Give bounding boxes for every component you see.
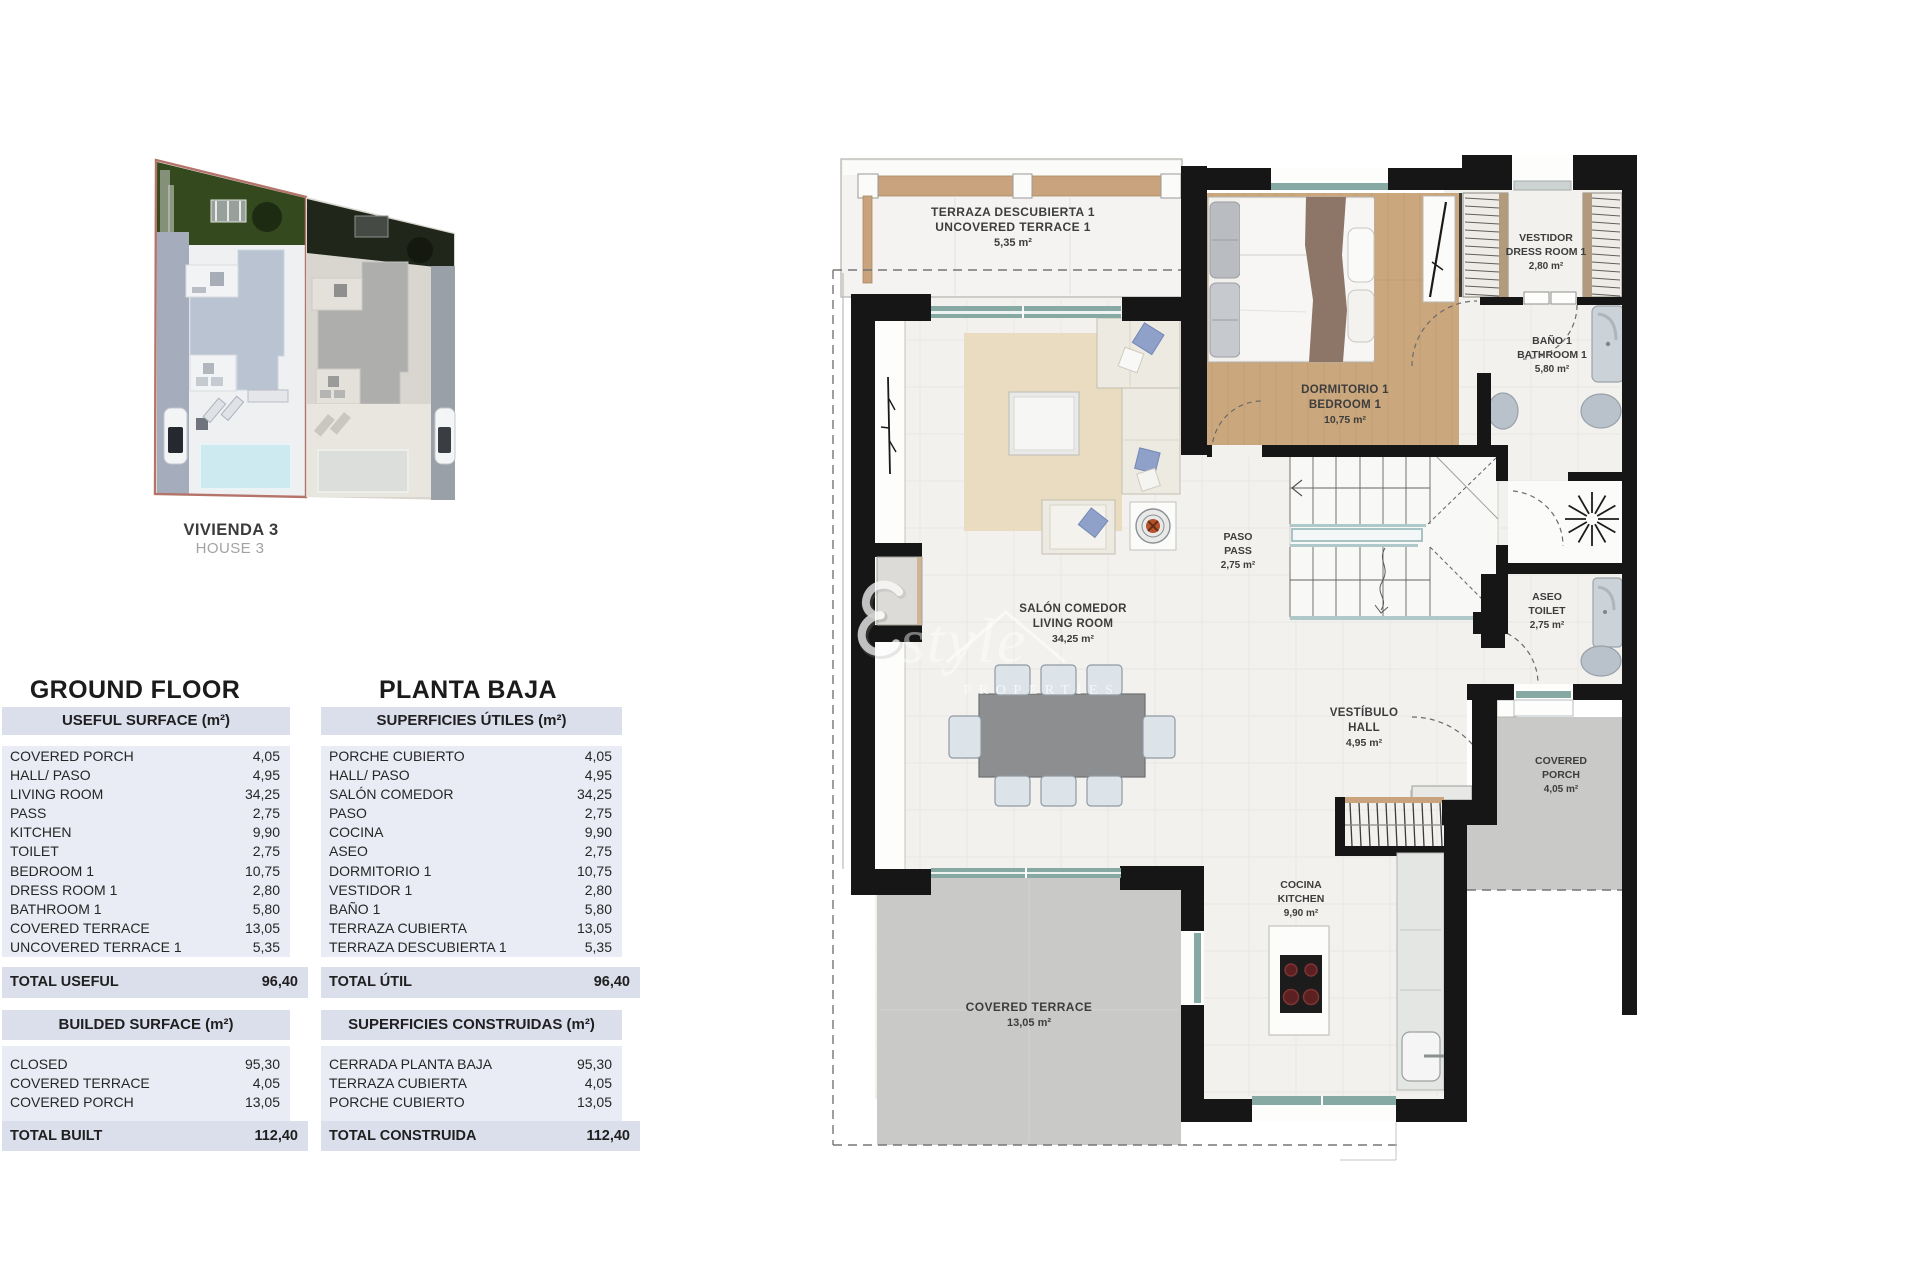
svg-text:2,75 m²: 2,75 m²	[1221, 560, 1256, 571]
svg-text:VIVIENDA 3: VIVIENDA 3	[183, 521, 278, 539]
svg-text:HOUSE 3: HOUSE 3	[196, 540, 265, 557]
svg-text:PASS: PASS	[1224, 545, 1252, 557]
svg-text:2,75 m²: 2,75 m²	[1530, 620, 1565, 631]
svg-text:VESTÍBULO: VESTÍBULO	[1330, 706, 1399, 719]
svg-text:5,80 m²: 5,80 m²	[1535, 364, 1570, 375]
svg-text:COVERED: COVERED	[1535, 755, 1587, 767]
svg-text:COCINA: COCINA	[1280, 879, 1322, 891]
svg-text:SALÓN COMEDOR: SALÓN COMEDOR	[1019, 602, 1127, 615]
svg-text:PORCH: PORCH	[1542, 769, 1580, 781]
svg-text:PASO: PASO	[1224, 531, 1253, 543]
svg-text:BEDROOM 1: BEDROOM 1	[1309, 399, 1382, 411]
svg-text:10,75 m²: 10,75 m²	[1324, 414, 1367, 426]
svg-text:4,05 m²: 4,05 m²	[1544, 784, 1579, 795]
svg-text:TERRAZA DESCUBIERTA 1: TERRAZA DESCUBIERTA 1	[931, 205, 1095, 219]
svg-text:COVERED TERRACE: COVERED TERRACE	[966, 1000, 1093, 1014]
svg-text:9,90 m²: 9,90 m²	[1284, 908, 1319, 919]
svg-text:BAÑO 1: BAÑO 1	[1532, 334, 1572, 347]
svg-text:13,05 m²: 13,05 m²	[1007, 1017, 1051, 1029]
svg-text:DRESS ROOM 1: DRESS ROOM 1	[1506, 246, 1587, 258]
svg-text:LIVING ROOM: LIVING ROOM	[1033, 618, 1114, 630]
svg-text:HALL: HALL	[1348, 722, 1380, 734]
svg-text:PROPERTIES: PROPERTIES	[964, 683, 1121, 698]
svg-text:UNCOVERED TERRACE 1: UNCOVERED TERRACE 1	[935, 220, 1091, 234]
svg-text:34,25 m²: 34,25 m²	[1052, 633, 1095, 645]
svg-text:DORMITORIO 1: DORMITORIO 1	[1301, 384, 1389, 396]
svg-text:ASEO: ASEO	[1532, 591, 1562, 603]
svg-text:4,95 m²: 4,95 m²	[1346, 737, 1383, 749]
svg-text:5,35 m²: 5,35 m²	[994, 237, 1032, 249]
svg-text:VESTIDOR: VESTIDOR	[1519, 232, 1573, 244]
svg-text:2,80 m²: 2,80 m²	[1529, 261, 1564, 272]
svg-text:KITCHEN: KITCHEN	[1278, 893, 1325, 905]
svg-text:TOILET: TOILET	[1528, 605, 1566, 617]
